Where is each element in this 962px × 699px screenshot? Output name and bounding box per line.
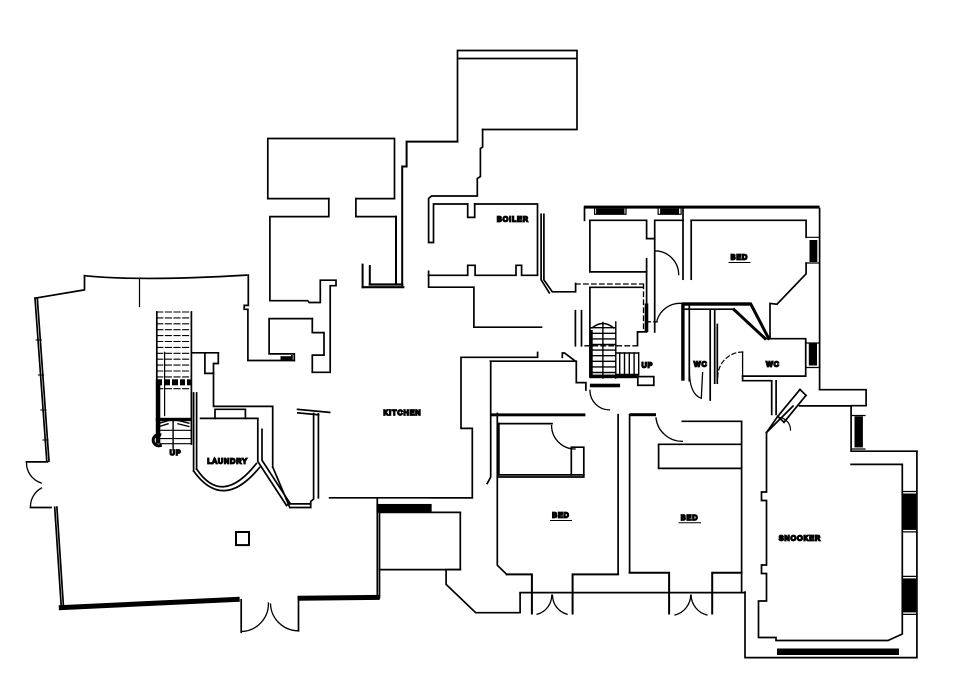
svg-text:WC: WC [766, 361, 780, 368]
svg-text:UP: UP [170, 450, 182, 457]
svg-text:BED: BED [731, 255, 749, 262]
svg-text:BED: BED [681, 515, 699, 522]
svg-text:SNOOKER: SNOOKER [779, 535, 821, 542]
svg-text:KITCHEN: KITCHEN [383, 410, 421, 417]
svg-text:WC: WC [694, 361, 708, 368]
svg-text:LAUNDRY: LAUNDRY [207, 458, 248, 465]
svg-text:BOILER: BOILER [497, 217, 529, 224]
svg-text:BED: BED [552, 513, 570, 520]
svg-text:UP: UP [642, 362, 654, 369]
